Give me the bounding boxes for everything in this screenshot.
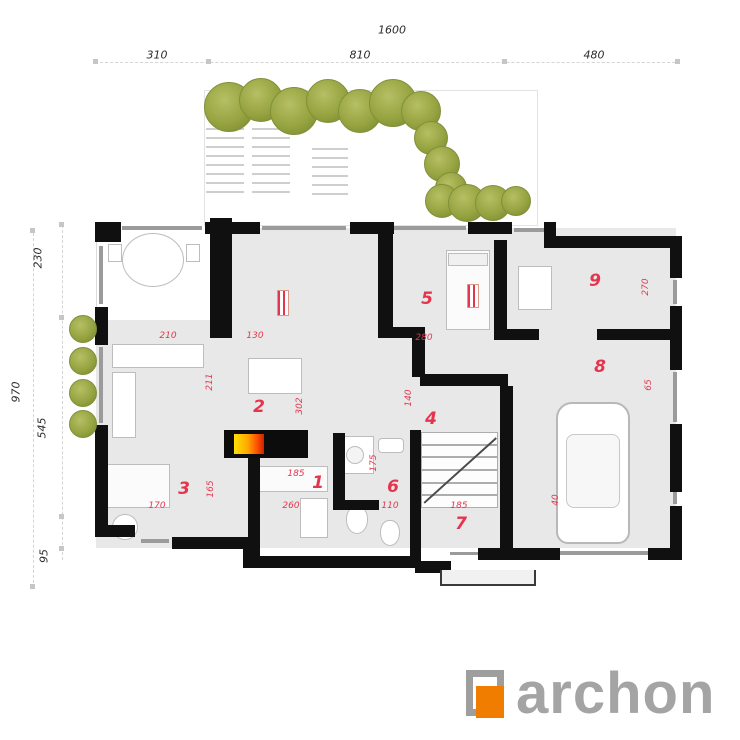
floor-plan: 1234567892101302113021701651852601402801… (0, 0, 740, 740)
room-number: 6 (387, 477, 399, 497)
dimension-tick (59, 546, 64, 551)
pergola-slats (312, 148, 348, 200)
wall (378, 222, 393, 332)
window-line (141, 539, 169, 543)
wall (507, 329, 539, 340)
furniture-radiator (467, 284, 479, 308)
room-number: 9 (589, 271, 601, 291)
furniture-table (248, 358, 302, 394)
room-dimension-label: 280 (415, 333, 432, 343)
wall (337, 556, 418, 568)
dimension-line (95, 62, 680, 63)
wall (494, 240, 507, 340)
furniture-table (300, 498, 328, 538)
wall (478, 548, 530, 560)
archon-logo: archon (462, 660, 732, 732)
room-dimension-label: 65 (644, 379, 654, 390)
bush (69, 315, 97, 343)
room-dimension-label: 110 (381, 501, 398, 511)
furniture-counter (112, 344, 204, 368)
furniture-sink (378, 438, 404, 453)
wall (95, 222, 121, 242)
bush (69, 347, 97, 375)
room-number: 7 (455, 514, 467, 534)
furniture-counter (112, 372, 136, 438)
dimension-tick (30, 584, 35, 589)
wall (95, 525, 135, 537)
wall (648, 548, 682, 560)
wall (500, 386, 513, 548)
room-dimension-label: 130 (246, 331, 263, 341)
overall-dimension-top: 810 (350, 49, 371, 62)
pergola-slats (206, 128, 244, 200)
room-dimension-label: 40 (551, 494, 561, 505)
room-number: 8 (594, 357, 606, 377)
room-dimension-label: 211 (205, 373, 215, 390)
furniture-table-ellipse (122, 233, 184, 287)
dimension-line (33, 228, 34, 588)
dimension-tick (675, 59, 680, 64)
wall (554, 236, 682, 248)
wall (333, 500, 379, 510)
furniture-pillow (448, 253, 488, 266)
window-line (122, 226, 202, 230)
furniture-toilet (346, 506, 368, 534)
wall (670, 236, 682, 278)
dimension-tick (59, 222, 64, 227)
wall (95, 307, 108, 345)
dimension-tick (30, 228, 35, 233)
bush (69, 379, 97, 407)
bush (69, 410, 97, 438)
window-line (673, 280, 677, 304)
overall-dimension-left: 545 (36, 418, 49, 439)
dimension-tick (206, 59, 211, 64)
wall (333, 433, 345, 505)
overall-dimension-left: 970 (10, 382, 23, 403)
window-line (99, 246, 103, 304)
window-line (394, 226, 466, 230)
entrance-porch (440, 570, 536, 586)
room-dimension-label: 302 (295, 397, 305, 414)
overall-dimension-top: 480 (584, 49, 605, 62)
room-dimension-label: 170 (148, 501, 165, 511)
wall (528, 548, 560, 560)
logo-orange-square-icon (476, 686, 504, 718)
wall (420, 374, 508, 386)
logo-wordmark: archon (516, 660, 715, 727)
window-line (673, 492, 677, 504)
room-dimension-label: 175 (369, 454, 379, 471)
room-number: 3 (178, 479, 190, 499)
furniture-chair (108, 244, 122, 262)
room-number: 4 (425, 409, 437, 429)
window-line (262, 226, 346, 230)
furniture-shower-head (346, 446, 364, 464)
room-dimension-label: 260 (282, 501, 299, 511)
window-line (560, 551, 648, 555)
bush (501, 186, 531, 216)
wall (670, 424, 682, 492)
room-number: 2 (253, 397, 265, 417)
furniture-fixture (518, 266, 552, 310)
dimension-tick (59, 514, 64, 519)
dimension-tick (59, 315, 64, 320)
furniture-radiator (277, 290, 289, 316)
stair-step (421, 432, 498, 445)
window-line (450, 552, 478, 555)
floor-plan-page: 1234567892101302113021701651852601402801… (0, 0, 740, 740)
furniture-car-inner (566, 434, 620, 508)
window-line (99, 347, 103, 423)
wall (468, 222, 512, 234)
furniture-toilet (380, 520, 400, 546)
room-dimension-label: 185 (450, 501, 467, 511)
wall (248, 458, 260, 557)
wall (670, 306, 682, 370)
room-dimension-label: 210 (159, 331, 176, 341)
overall-dimension-top: 1600 (378, 24, 406, 37)
dimension-tick (93, 59, 98, 64)
overall-dimension-top: 310 (147, 49, 168, 62)
wall (95, 425, 108, 537)
wall (210, 218, 232, 338)
overall-dimension-left: 95 (38, 549, 51, 563)
stair-step (421, 470, 498, 483)
fireplace-flame-icon (234, 434, 264, 454)
pergola-slats (252, 128, 290, 200)
room-dimension-label: 270 (641, 278, 651, 295)
wall (597, 329, 670, 340)
wall (255, 556, 337, 568)
room-number: 5 (421, 289, 433, 309)
dimension-line (62, 225, 63, 560)
dimension-tick (502, 59, 507, 64)
window-line (673, 372, 677, 422)
furniture-chair (186, 244, 200, 262)
room-number: 1 (312, 473, 324, 493)
room-dimension-label: 185 (287, 469, 304, 479)
room-dimension-label: 165 (206, 480, 216, 497)
overall-dimension-left: 230 (32, 248, 45, 269)
room-dimension-label: 140 (404, 389, 414, 406)
wall (410, 430, 421, 561)
